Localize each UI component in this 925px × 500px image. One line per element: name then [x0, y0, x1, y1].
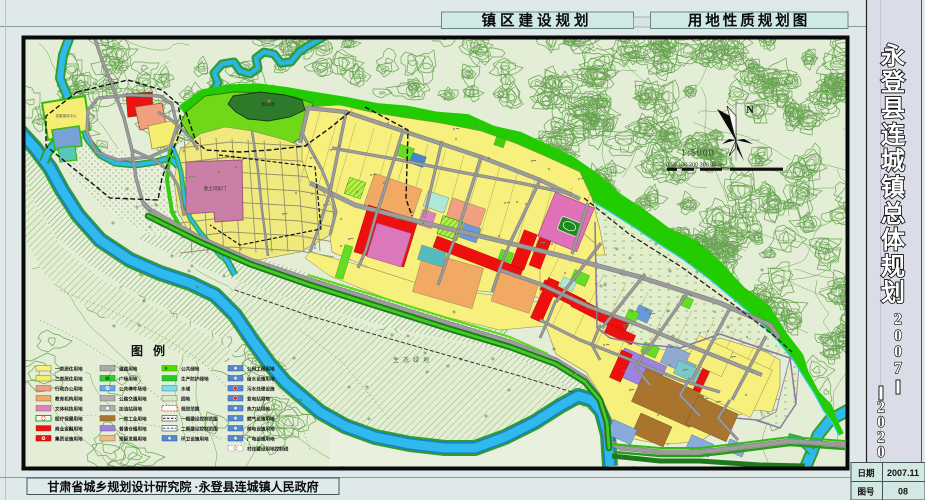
svg-text:村庄建设用地控制线: 村庄建设用地控制线	[247, 446, 289, 453]
svg-text:污水处理设施: 污水处理设施	[247, 386, 275, 393]
svg-text:图例: 图例	[131, 343, 175, 358]
svg-text:普通仓储用地: 普通仓储用地	[119, 426, 147, 433]
svg-text:水域: 水域	[181, 386, 191, 393]
svg-text:规划范围: 规划范围	[181, 406, 200, 413]
svg-text:镇区建设规划: 镇区建设规划	[482, 11, 593, 29]
svg-text:0: 0	[894, 344, 902, 361]
svg-text:给水设施用地: 给水设施用地	[247, 376, 275, 383]
svg-text:二类居住用地: 二类居住用地	[55, 376, 83, 383]
svg-text:公路交通用地: 公路交通用地	[119, 396, 147, 403]
svg-text:1:5000: 1:5000	[681, 148, 715, 159]
svg-text:教育机构用地: 教育机构用地	[54, 396, 83, 403]
svg-text:鲁土司衙门: 鲁土司衙门	[204, 185, 227, 192]
svg-text:甘肃省城乡规划设计研究院 ·永登县连城镇人民政府: 甘肃省城乡规划设计研究院 ·永登县连城镇人民政府	[47, 479, 318, 494]
svg-text:集贸设施用地: 集贸设施用地	[54, 436, 83, 443]
svg-text:热力站用地: 热力站用地	[247, 406, 270, 413]
svg-text:08: 08	[898, 487, 908, 497]
svg-text:游客接待中心: 游客接待中心	[56, 113, 77, 118]
svg-text:公共绿地: 公共绿地	[181, 366, 200, 373]
svg-text:广场用地: 广场用地	[119, 376, 138, 383]
svg-text:县: 县	[881, 96, 905, 123]
svg-text:生产防护绿地: 生产防护绿地	[181, 376, 209, 383]
svg-text:道路用地: 道路用地	[119, 366, 138, 373]
svg-text:广电设施用地: 广电设施用地	[247, 436, 275, 443]
svg-text:生态绿地: 生态绿地	[393, 356, 433, 364]
svg-text:日期: 日期	[857, 468, 875, 478]
svg-text:燃气设施用地: 燃气设施用地	[247, 416, 275, 423]
svg-text:城: 城	[881, 147, 905, 175]
svg-text:园地: 园地	[181, 396, 191, 403]
svg-text:行政办公用地: 行政办公用地	[54, 386, 83, 393]
svg-text:划: 划	[881, 280, 905, 307]
svg-text:7: 7	[894, 360, 902, 377]
svg-text:邮电设施用地: 邮电设施用地	[247, 426, 275, 433]
svg-text:2007.11: 2007.11	[887, 468, 919, 478]
svg-text:永: 永	[881, 43, 905, 70]
svg-text:用地性质规划图: 用地性质规划图	[688, 11, 811, 29]
svg-text:镇: 镇	[881, 175, 905, 202]
svg-text:青山寺: 青山寺	[261, 101, 275, 108]
svg-text:规: 规	[881, 253, 905, 280]
svg-text:2: 2	[894, 311, 902, 328]
svg-text:N: N	[746, 104, 754, 116]
svg-text:一类工业用地: 一类工业用地	[119, 416, 147, 423]
svg-text:总: 总	[881, 200, 905, 228]
svg-text:0: 0	[894, 327, 902, 344]
svg-text:一类居住用地: 一类居住用地	[55, 366, 83, 373]
svg-text:环卫设施用地: 环卫设施用地	[181, 436, 209, 443]
svg-text:二期建设控制范围: 二期建设控制范围	[181, 426, 218, 433]
svg-text:预留发展用地: 预留发展用地	[119, 436, 147, 443]
svg-text:体: 体	[881, 227, 906, 254]
svg-text:商业金融用地: 商业金融用地	[55, 426, 83, 433]
svg-text:连: 连	[881, 121, 906, 149]
svg-text:登: 登	[880, 69, 906, 96]
svg-text:P: P	[106, 386, 109, 391]
svg-text:加油站用地: 加油站用地	[118, 406, 142, 413]
svg-text:医疗保健用地: 医疗保健用地	[55, 416, 83, 423]
svg-text:图号: 图号	[857, 487, 875, 497]
svg-text:变电站用地: 变电站用地	[247, 396, 270, 403]
svg-text:文体科技用地: 文体科技用地	[55, 406, 83, 413]
svg-text:0: 0	[877, 444, 885, 461]
svg-text:公用工程用地: 公用工程用地	[247, 366, 275, 373]
svg-text:公共停车场地: 公共停车场地	[119, 386, 147, 393]
svg-text:一期建设控制范围: 一期建设控制范围	[181, 416, 218, 423]
